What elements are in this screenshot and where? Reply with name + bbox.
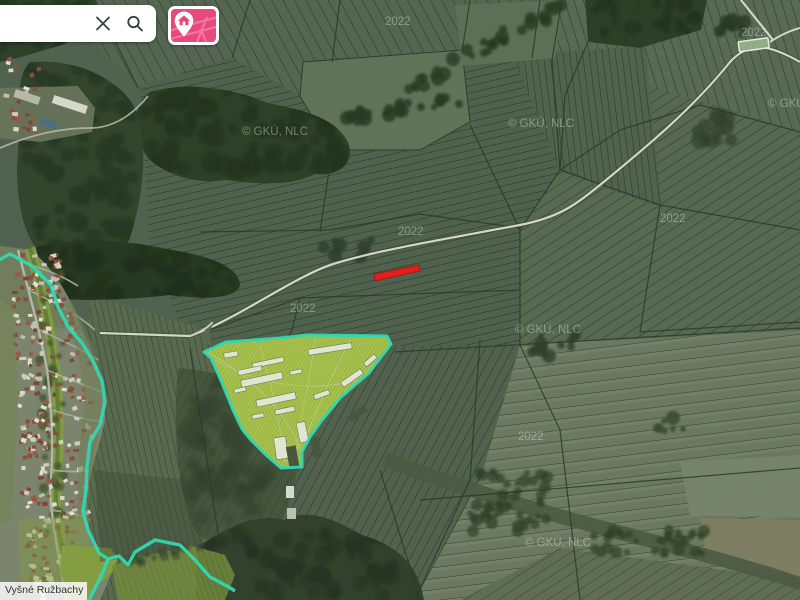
svg-text:© GKÚ: © GKÚ [768, 97, 800, 110]
svg-text:2022: 2022 [385, 16, 411, 28]
svg-text:2022: 2022 [398, 226, 424, 238]
svg-text:© GKÚ, NLC: © GKÚ, NLC [242, 125, 308, 138]
svg-text:2022: 2022 [660, 213, 686, 225]
svg-text:2022: 2022 [741, 27, 767, 39]
svg-text:2022: 2022 [518, 431, 544, 443]
svg-text:© GKÚ, NLC: © GKÚ, NLC [525, 536, 591, 549]
svg-text:© GKÚ, NLC: © GKÚ, NLC [508, 117, 574, 130]
svg-text:© GKÚ, NLC: © GKÚ, NLC [515, 323, 581, 336]
svg-text:2022: 2022 [290, 303, 316, 315]
